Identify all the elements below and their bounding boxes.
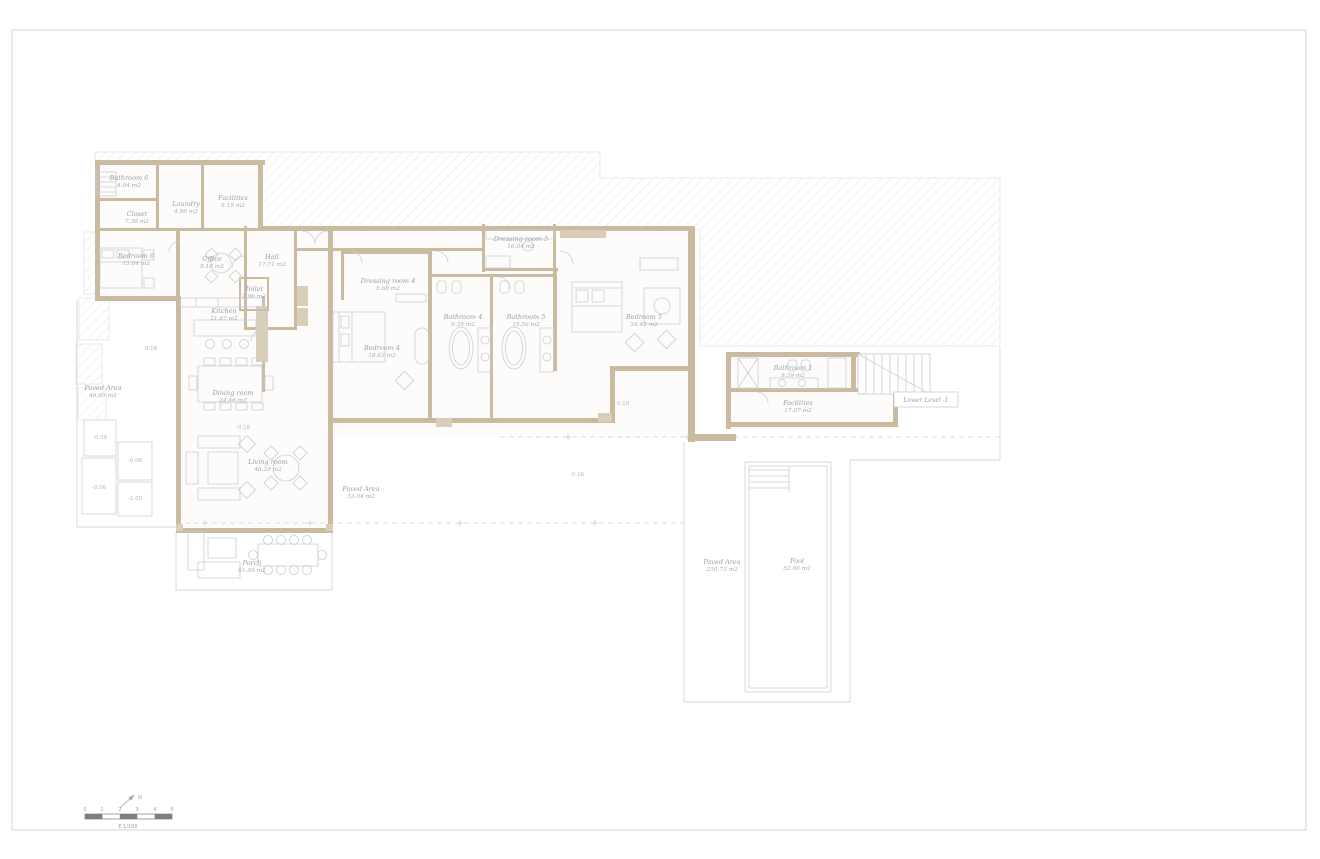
- lower-level-label: Lower Level -1: [902, 397, 948, 404]
- scale-tick: 5: [170, 807, 173, 813]
- room-name: Laundry: [171, 200, 200, 208]
- room-name: Toilet: [245, 285, 264, 293]
- room-area: 9.19 m2: [221, 203, 245, 209]
- floor-plate: [176, 296, 333, 533]
- room-area: 9.10 m2: [200, 264, 224, 270]
- scale-tick: 1: [100, 807, 103, 813]
- floor-plan-page: Lower Level -1 Bathroom 6 4.04 m2 Laundr…: [0, 0, 1320, 859]
- level-mark: -0.16: [236, 425, 251, 431]
- room-area: 4.04 m2: [116, 183, 141, 189]
- room-name: Bathroom 4: [443, 313, 483, 321]
- north-label: N: [138, 795, 142, 801]
- room-area: 17.71 m2: [258, 262, 286, 268]
- chair: [303, 566, 312, 575]
- stair-to-lower-level: [858, 354, 930, 394]
- pool-outer: [745, 462, 831, 692]
- room-name: Bedroom 6: [117, 252, 154, 260]
- room-area: 4.96 m2: [173, 209, 198, 215]
- planter-hatch: [76, 344, 102, 384]
- scale-tick: 3: [135, 807, 138, 813]
- room-area: 9.35 m2: [451, 322, 475, 328]
- room-area: 9.39 m2: [781, 373, 805, 379]
- room-area: 21.67 m2: [209, 316, 238, 322]
- chair: [277, 566, 286, 575]
- room-area: 2.96 m2: [241, 294, 266, 300]
- chair: [290, 566, 299, 575]
- level-mark: -0.09: [93, 435, 108, 441]
- north-arrow: N: [120, 795, 142, 808]
- chair: [318, 551, 327, 560]
- pool-steps: [749, 466, 789, 492]
- room-name: Office: [202, 255, 222, 263]
- room-name: Bedroom 5: [625, 313, 662, 321]
- room-name: Pool: [789, 557, 804, 565]
- room-name: Dining room: [211, 389, 253, 397]
- room-name: Bathroom 5: [506, 313, 546, 321]
- scale-tick: 4: [153, 807, 156, 813]
- room-area: 24.46 m2: [218, 398, 247, 404]
- pool: [745, 462, 831, 692]
- room-name: Facilities: [782, 399, 813, 407]
- room-area: 18.63 m2: [368, 353, 396, 359]
- scale-bar-segment: [155, 814, 172, 819]
- room-area: 46.05 m2: [88, 393, 117, 399]
- scale-bar-segment: [85, 814, 102, 819]
- planter-hatch: [84, 232, 96, 294]
- level-mark: -1.00: [128, 496, 143, 502]
- chair: [303, 536, 312, 545]
- room-name: Bedroom 4: [363, 344, 400, 352]
- room-area: 15.56 m2: [512, 322, 540, 328]
- planter-hatch: [79, 298, 109, 340]
- room-name: Paved Area: [341, 485, 379, 493]
- room-name: Living room: [247, 458, 288, 466]
- scale-tick: 0: [83, 807, 86, 813]
- room-area: 7.36 m2: [125, 219, 149, 225]
- room-area: 13.64 m2: [122, 261, 150, 267]
- room-area: 17.07 m2: [784, 408, 812, 414]
- room-name: Paved Area: [83, 384, 121, 392]
- room-area: 34.45 m2: [630, 322, 658, 328]
- room-name: Bathroom 6: [109, 174, 149, 182]
- floor-plan-svg: Lower Level -1 Bathroom 6 4.04 m2 Laundr…: [0, 0, 1320, 859]
- room-area: 61.09 m2: [238, 568, 266, 574]
- room-name: Hall: [264, 253, 279, 261]
- room-name: Porch: [242, 559, 262, 567]
- room-area: 46.29 m2: [253, 467, 282, 473]
- scale-label: E 1/100: [118, 824, 137, 830]
- room-area: 230.73 m2: [705, 567, 738, 573]
- level-mark: -0.06: [92, 485, 107, 491]
- scale-tick: 2: [118, 807, 121, 813]
- pool-inner: [749, 466, 827, 688]
- level-mark: -0.16: [570, 472, 585, 478]
- room-area: 5.68 m2: [376, 286, 400, 292]
- chair: [264, 536, 273, 545]
- room-area: 16.04 m2: [507, 244, 535, 250]
- room-name: Dressing room 4: [360, 277, 416, 285]
- level-mark: -0.06: [128, 458, 143, 464]
- room-name: Bathroom 1: [773, 364, 813, 372]
- chair: [277, 536, 286, 545]
- room-name: Dressing room 5: [493, 235, 549, 243]
- room-name: Kitchen: [210, 307, 236, 315]
- room-name: Facilities: [217, 194, 248, 202]
- room-area: 53.04 m2: [347, 494, 375, 500]
- room-name: Paved Area: [702, 558, 740, 566]
- level-mark: -0.10: [615, 401, 630, 407]
- room-name: Closet: [127, 210, 148, 218]
- chair: [290, 536, 299, 545]
- room-area: 52.00 m2: [783, 566, 811, 572]
- scale-bar: 0 1 2 3 4 5 E 1/100: [83, 807, 173, 830]
- level-mark: -0.16: [143, 346, 158, 352]
- scale-bar-segment: [120, 814, 137, 819]
